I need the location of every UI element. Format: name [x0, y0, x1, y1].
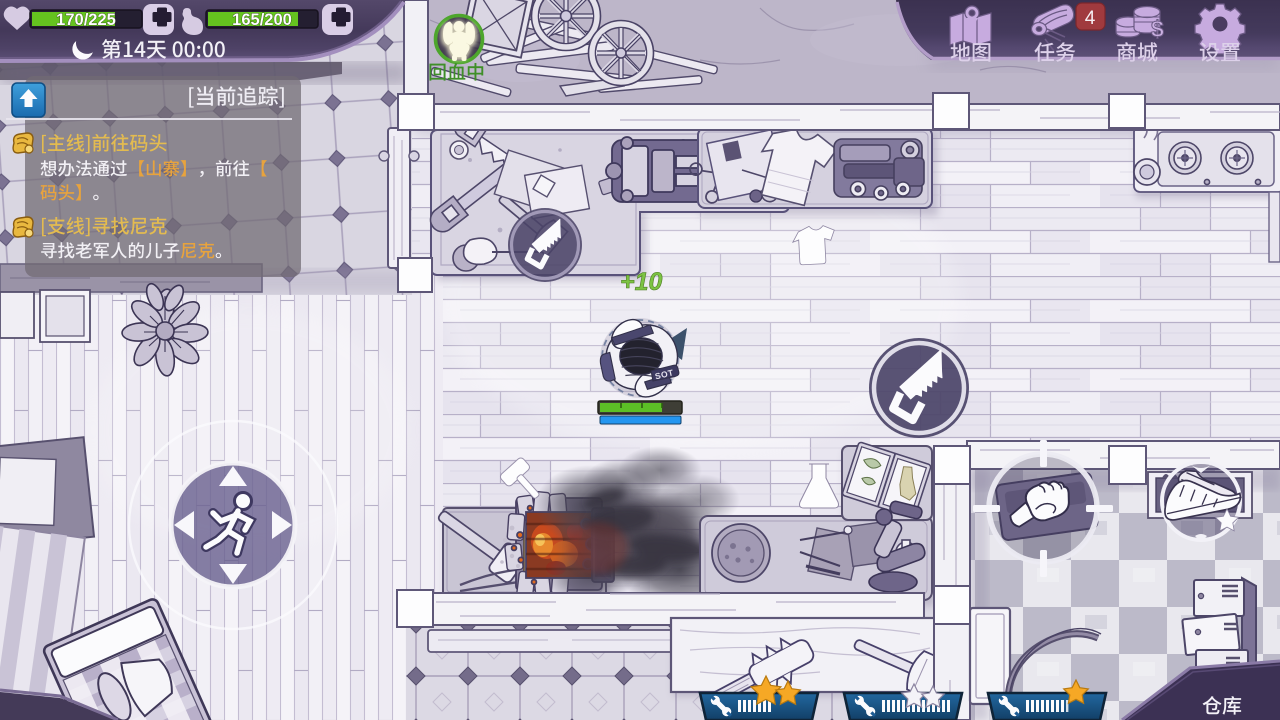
svg-text:$: $ — [1151, 16, 1164, 42]
svg-text:165/200: 165/200 — [232, 11, 292, 29]
svg-text:170/225: 170/225 — [56, 11, 116, 29]
svg-text:+10: +10 — [620, 268, 663, 296]
svg-text:4: 4 — [1085, 8, 1096, 29]
